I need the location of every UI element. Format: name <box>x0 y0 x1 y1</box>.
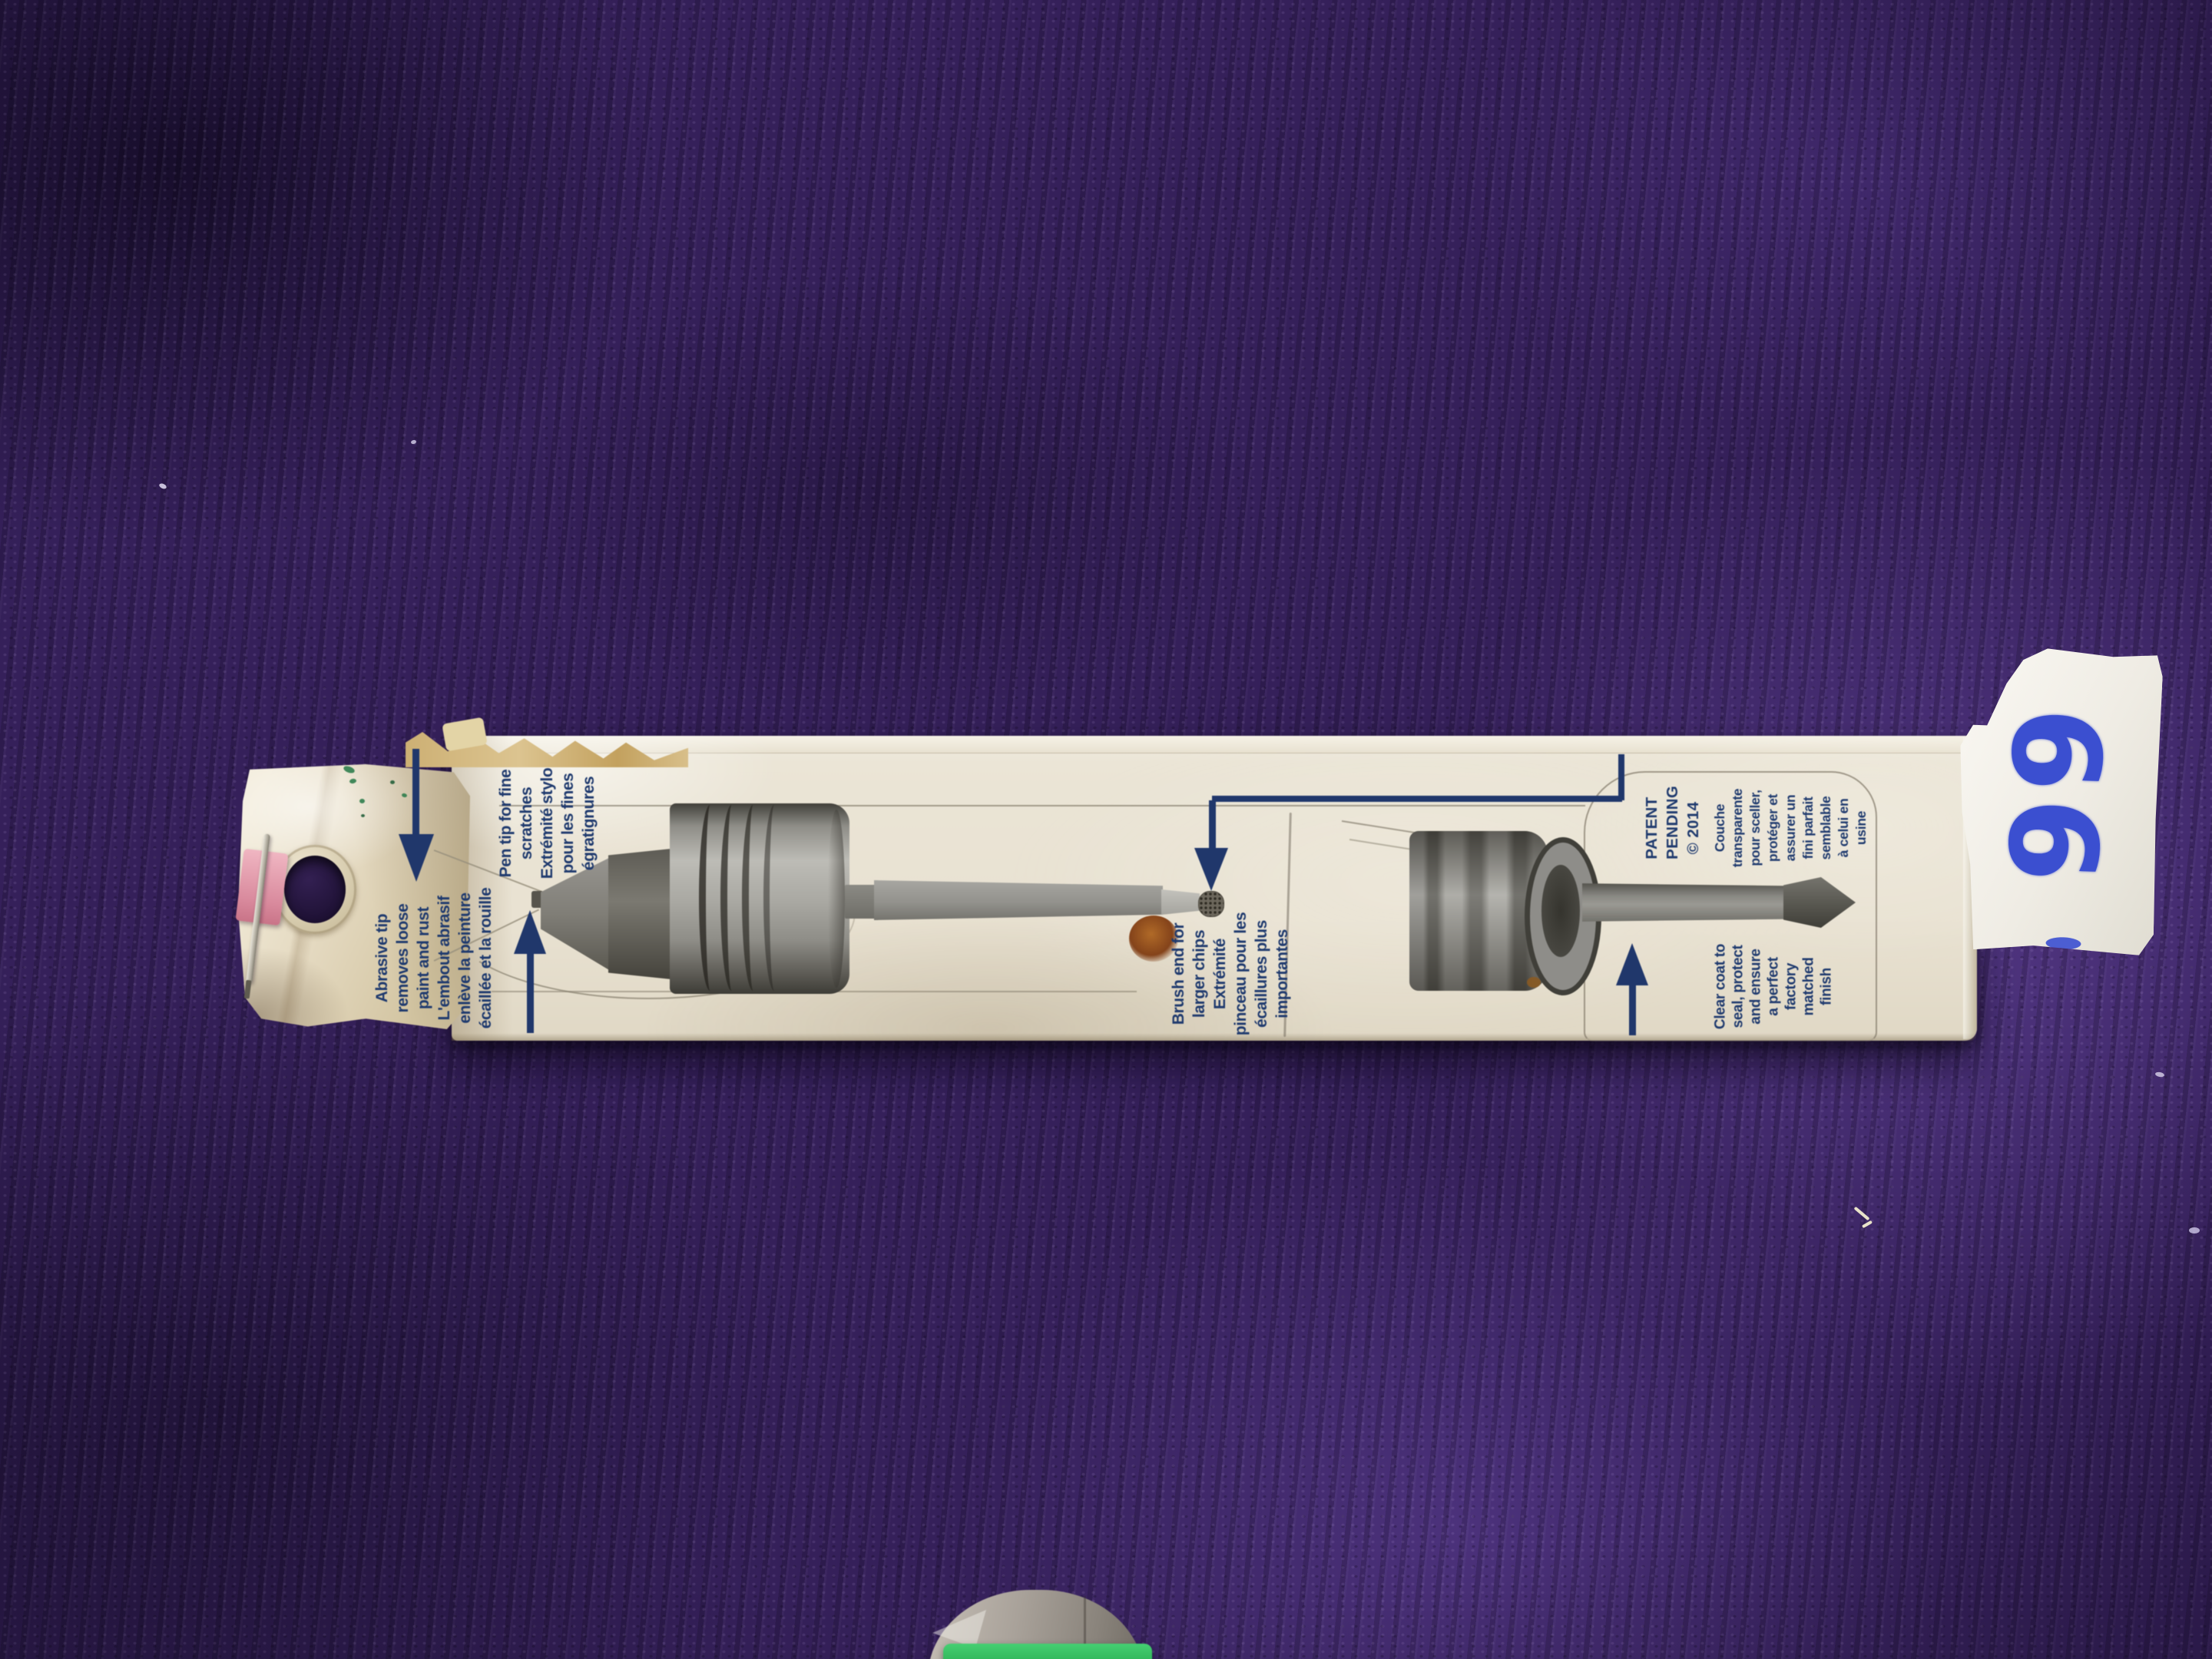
arrow-line <box>1209 800 1216 849</box>
arrow-line <box>412 749 419 835</box>
arrow-down-icon <box>1194 848 1228 891</box>
green-fleck <box>361 814 365 817</box>
green-fleck <box>390 780 395 784</box>
elbow-connector <box>1212 796 1622 802</box>
callout-pen-tip-en: Pen tip for fine scratches <box>495 766 537 881</box>
clearcoat-rod <box>1582 882 1788 923</box>
rod-neck <box>845 885 876 919</box>
green-object <box>922 1584 1160 1659</box>
arrow-up-icon <box>1616 943 1648 985</box>
rust-dot <box>1527 977 1541 988</box>
applicator-rod <box>874 880 1163 920</box>
product-box: Abrasive tip removes loose paint and rus… <box>238 722 1997 1083</box>
arrow-line <box>1629 984 1636 1035</box>
callout-pen-tip: Pen tip for fine scratches Extrémité sty… <box>495 766 599 881</box>
arrow-line <box>527 952 534 1033</box>
green-fleck <box>359 799 365 803</box>
elbow-connector <box>1618 754 1624 800</box>
arrow-down-icon <box>399 834 434 882</box>
callout-brush-end-fr: Extrémité pinceau pour les écaillures pl… <box>1210 911 1293 1037</box>
patent-notice: PATENT PENDING © 2014 <box>1637 796 1707 859</box>
hang-hole <box>284 856 346 923</box>
callout-clearcoat-en: Clear coat to seal, protect and ensure a… <box>1710 937 1837 1037</box>
bottle-outline <box>499 805 1585 806</box>
callout-brush-end: Brush end for larger chips Extrémité pin… <box>1165 911 1296 1037</box>
barrel-end-shade <box>828 810 845 988</box>
callout-abrasive: Abrasive tip removes loose paint and rus… <box>370 876 497 1041</box>
barrel-rib <box>742 805 764 991</box>
arrow-up-icon <box>514 910 546 954</box>
callout-pen-tip-fr: Extrémité stylo pour les fines égratignu… <box>537 766 599 881</box>
callout-abrasive-fr: L'embout abrasif enlève la peinture écai… <box>434 876 496 1041</box>
barrel-rib <box>720 805 743 991</box>
pen-cap-barrel <box>670 803 849 994</box>
price-value: 99 <box>1985 699 2132 885</box>
clearcoat-cap-inner <box>1541 865 1580 957</box>
barrel-rib <box>763 805 785 991</box>
callout-brush-end-en: Brush end for larger chips <box>1168 911 1210 1037</box>
pen-collar <box>608 849 671 979</box>
callout-abrasive-en: Abrasive tip removes loose paint and rus… <box>372 876 434 1041</box>
photo-scene: Abrasive tip removes loose paint and rus… <box>0 0 2212 1659</box>
carpet-speck <box>2189 1227 2200 1233</box>
green-object-base <box>943 1644 1152 1659</box>
barrel-rib <box>699 805 721 991</box>
callout-clearcoat-fr: Couche transparente pour sceller, protég… <box>1710 779 1871 877</box>
